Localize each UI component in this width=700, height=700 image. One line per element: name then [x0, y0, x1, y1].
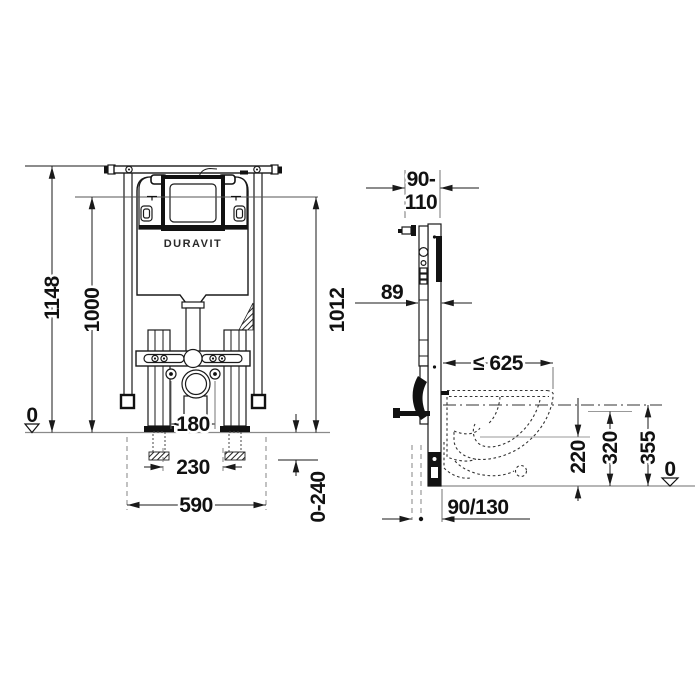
flush-pipe-flange — [182, 302, 204, 308]
dim-panel-height-label: 1012 — [326, 288, 349, 333]
technical-drawing: DURAVIT — [0, 0, 700, 700]
dim-outlet-height-label: 220 — [567, 440, 590, 474]
frame-left-rail — [124, 168, 132, 408]
side-view: 90- 110 89 ≤ 625 220 320 — [355, 168, 695, 522]
dim-frame-width-label: 590 — [179, 494, 213, 517]
dim-foot-adjustment: 0-240 — [278, 414, 330, 523]
water-connection — [402, 227, 411, 234]
front-view: DURAVIT — [25, 165, 349, 523]
dim-bowl-projection: ≤ 625 — [443, 352, 553, 389]
top-bar — [114, 166, 272, 173]
dim-total-height: 1148 — [41, 167, 64, 433]
toilet-bowl-outline — [444, 391, 553, 479]
dim-bracket-height-label: 355 — [637, 430, 660, 464]
dim-stud-spacing-label: 180 — [176, 413, 210, 436]
dim-bowl-projection-label: ≤ 625 — [473, 352, 524, 375]
wall-bracket — [436, 236, 442, 282]
dim-bracket-height: 355 — [637, 405, 660, 486]
frame-right-rail — [254, 168, 262, 408]
dim-frame-depth: 89 — [355, 281, 472, 304]
dim-cistern-height: 1000 — [81, 197, 104, 433]
dim-drain-offset-label: 90/130 — [447, 496, 508, 519]
dim-cistern-height-label: 1000 — [81, 288, 104, 333]
dim-rim-reference: 320 — [599, 412, 622, 487]
dim-foot-adjustment-label: 0-240 — [307, 471, 330, 522]
dim-drain-offset: 90/130 — [382, 445, 530, 522]
side-datum: 0 — [662, 458, 678, 486]
dim-anchor-spacing-label: 230 — [176, 456, 210, 479]
hatch-wedge — [239, 303, 253, 330]
brand-logo: DURAVIT — [164, 238, 223, 250]
dim-frame-depth-label: 89 — [381, 281, 403, 304]
flush-pipe — [186, 308, 200, 352]
cistern-seam — [139, 225, 247, 230]
left-rail-foot-bracket — [121, 395, 134, 408]
dim-depth-range-top-label: 90- — [407, 168, 436, 191]
dim-rim-reference-label: 320 — [599, 431, 622, 465]
right-rail-foot-bracket — [252, 395, 265, 408]
dim-panel-height: 1012 — [316, 197, 349, 433]
dim-total-height-label: 1148 — [41, 275, 64, 319]
drawing-canvas: DURAVIT — [0, 0, 700, 700]
flush-pipe-hub — [184, 350, 202, 368]
dim-depth-range-bottom-label: 110 — [405, 191, 437, 214]
bowl-support-bracket — [396, 411, 430, 416]
dim-depth-range: 90- 110 — [366, 168, 479, 218]
front-datum: 0 — [25, 404, 39, 433]
